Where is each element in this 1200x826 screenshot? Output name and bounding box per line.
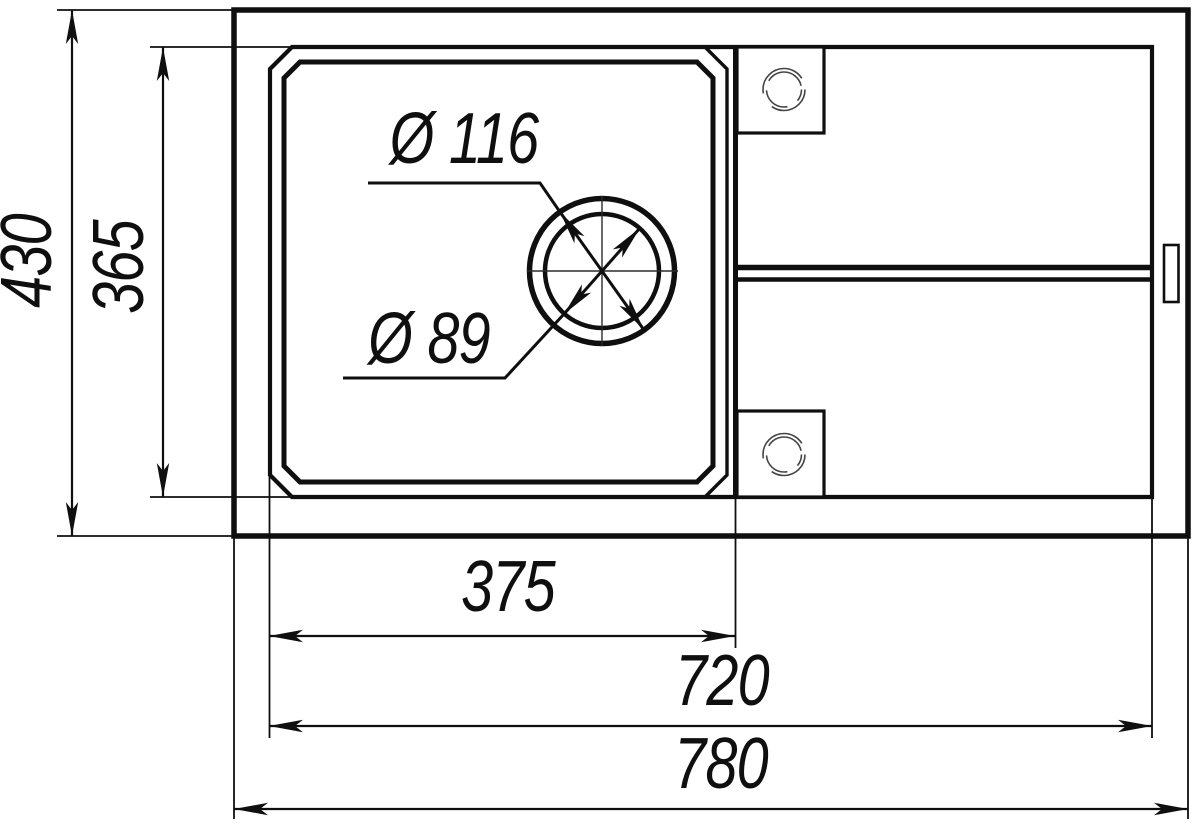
dimension-lines — [57, 10, 1188, 819]
dim-label-overall-depth: 430 — [0, 214, 63, 308]
dim-label-drain-hole-diameter: Ø 89 — [368, 303, 490, 375]
dim-label-overall-width: 780 — [674, 728, 768, 800]
bowl-right-rim-edge — [705, 47, 727, 497]
dim-label-bowl-width: 375 — [461, 551, 555, 623]
sink-body — [234, 10, 1188, 536]
faucet-square-top — [737, 47, 824, 133]
sink-line-art — [0, 0, 1200, 826]
technical-drawing-canvas: 430 365 Ø 116 Ø 89 375 720 780 — [0, 0, 1200, 826]
overflow-slot — [1164, 245, 1179, 302]
dia-116-leader — [368, 183, 560, 212]
dim-label-inner-width: 720 — [675, 645, 769, 717]
extension-lines — [57, 10, 1188, 819]
dim-label-bowl-depth: 365 — [83, 220, 155, 314]
faucet-square-bottom — [737, 411, 824, 497]
drainboard-groove — [737, 268, 1150, 280]
dim-label-drain-flange-diameter: Ø 116 — [390, 103, 539, 175]
